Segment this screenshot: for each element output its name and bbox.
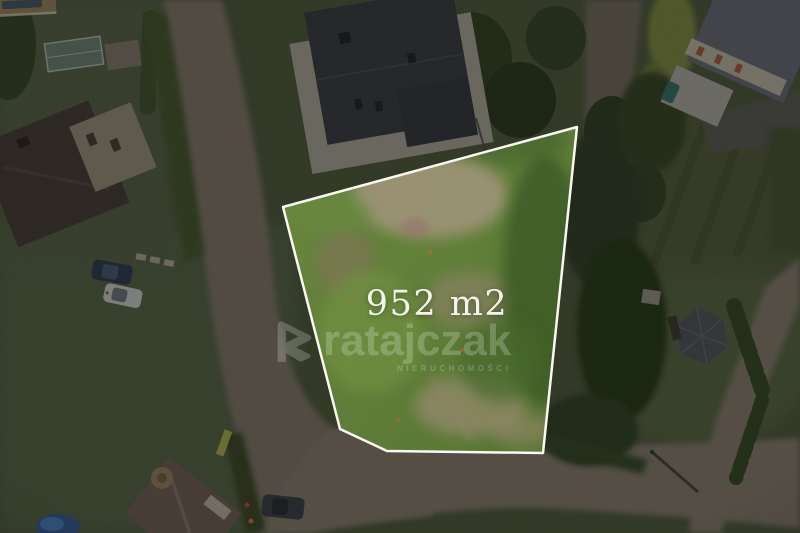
aerial-scene — [0, 0, 800, 533]
aerial-photo: ratajczak NIERUCHOMOŚCI 952 m2 — [0, 0, 800, 533]
plot-area-label: 952 m2 — [327, 284, 547, 324]
photo-grain — [0, 0, 800, 533]
watermark-tagline: NIERUCHOMOŚCI — [397, 364, 511, 373]
watermark-brand: ratajczak — [323, 319, 511, 363]
ratajczak-logo-icon — [274, 318, 314, 364]
watermark: ratajczak NIERUCHOMOŚCI — [274, 318, 511, 364]
